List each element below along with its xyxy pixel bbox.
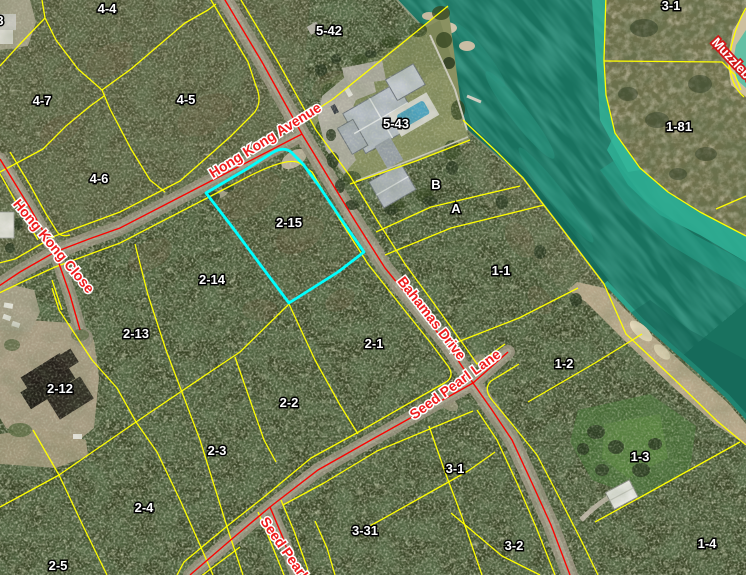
svg-text:4-4: 4-4 bbox=[98, 1, 118, 16]
svg-text:2-2: 2-2 bbox=[280, 395, 299, 410]
svg-text:2-12: 2-12 bbox=[47, 381, 73, 396]
svg-text:1-2: 1-2 bbox=[555, 356, 574, 371]
svg-text:2-13: 2-13 bbox=[123, 326, 149, 341]
svg-text:2-3: 2-3 bbox=[208, 443, 227, 458]
svg-text:5-43: 5-43 bbox=[383, 116, 409, 131]
svg-text:2-15: 2-15 bbox=[276, 215, 302, 230]
svg-text:1-4: 1-4 bbox=[698, 536, 718, 551]
svg-text:4-6: 4-6 bbox=[90, 171, 109, 186]
svg-text:1-1: 1-1 bbox=[492, 263, 511, 278]
svg-text:3-31: 3-31 bbox=[352, 523, 378, 538]
svg-text:A: A bbox=[451, 201, 461, 216]
svg-text:2-1: 2-1 bbox=[365, 336, 384, 351]
svg-text:2-4: 2-4 bbox=[135, 500, 155, 515]
svg-text:1-3: 1-3 bbox=[631, 449, 650, 464]
svg-text:3-2: 3-2 bbox=[505, 538, 524, 553]
svg-text:B: B bbox=[431, 177, 440, 192]
svg-text:4-7: 4-7 bbox=[33, 93, 52, 108]
svg-text:3-1: 3-1 bbox=[446, 461, 465, 476]
svg-text:3-1: 3-1 bbox=[662, 0, 681, 13]
svg-text:3: 3 bbox=[0, 13, 4, 28]
svg-text:4-5: 4-5 bbox=[177, 92, 196, 107]
svg-text:1-81: 1-81 bbox=[666, 119, 692, 134]
svg-text:2-5: 2-5 bbox=[49, 558, 68, 573]
svg-text:5-42: 5-42 bbox=[316, 23, 342, 38]
svg-text:2-14: 2-14 bbox=[199, 272, 226, 287]
